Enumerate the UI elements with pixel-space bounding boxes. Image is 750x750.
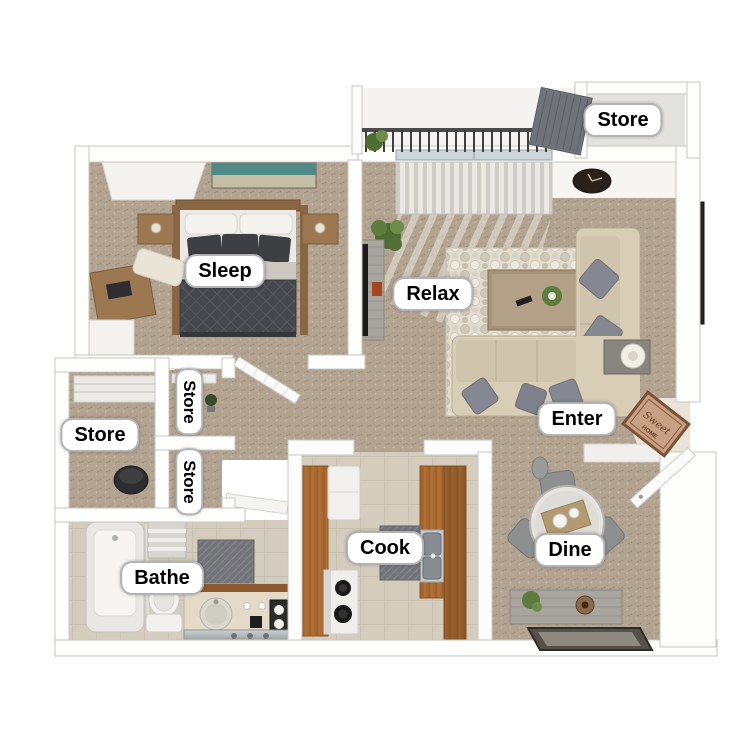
wall: [288, 440, 354, 455]
cup: [569, 508, 579, 518]
wall: [75, 146, 89, 372]
pillow: [240, 214, 292, 234]
sink-faucet: [214, 600, 219, 605]
room-label-store-closet-b: Store: [175, 448, 203, 515]
wall: [55, 358, 167, 372]
wall-clock: [573, 169, 611, 193]
room-label-enter: Enter: [537, 402, 616, 436]
sideboard: [510, 590, 622, 624]
leaning-mirror-tray: [528, 628, 652, 650]
wall: [348, 160, 362, 366]
pillow: [185, 214, 237, 234]
wall: [352, 86, 362, 154]
wire-shelf: [74, 376, 162, 402]
wall: [660, 452, 716, 647]
floor-lamp: [604, 340, 650, 374]
wall: [687, 82, 700, 158]
vase: [532, 457, 548, 479]
wall: [222, 358, 235, 378]
quilt: [180, 280, 296, 334]
soap-dispenser: [250, 616, 262, 628]
wall: [75, 146, 365, 162]
room-label-cook: Cook: [346, 531, 424, 565]
wall: [55, 508, 245, 522]
room-label-sleep: Sleep: [184, 254, 265, 288]
vertical-blinds: [396, 162, 552, 214]
storage-basket: [114, 466, 148, 494]
room-label-store-closet-a: Store: [175, 368, 203, 435]
bath-mat: [198, 540, 254, 584]
nightstand-left: [138, 214, 174, 244]
wall-art-beach: [212, 163, 316, 188]
wall: [308, 355, 365, 369]
cup: [553, 514, 567, 528]
tub-faucet: [112, 535, 118, 541]
white-dresser: [86, 320, 134, 356]
toilet-tank: [146, 614, 182, 632]
wall: [478, 452, 492, 647]
window-light: [102, 162, 206, 200]
nightstand-right: [302, 214, 338, 244]
wall: [55, 358, 69, 655]
headboard: [176, 200, 300, 211]
console-decor: [372, 282, 382, 296]
sliding-glass-door: [396, 150, 552, 214]
room-label-bathe: Bathe: [120, 561, 204, 595]
room-label-dine: Dine: [534, 533, 605, 567]
room-label-relax: Relax: [392, 277, 473, 311]
wall: [676, 146, 700, 402]
room-label-store-balcony: Store: [583, 103, 662, 137]
towel-shelf: [148, 522, 186, 558]
wall-face: [552, 162, 676, 198]
wall: [575, 82, 699, 94]
wall: [288, 440, 302, 655]
refrigerator: [328, 466, 360, 520]
floor-plan-image: Sweet HOME Sleep Relax Store Enter Store…: [0, 0, 750, 750]
room-label-store-left: Store: [60, 418, 139, 452]
stove: [324, 570, 358, 634]
